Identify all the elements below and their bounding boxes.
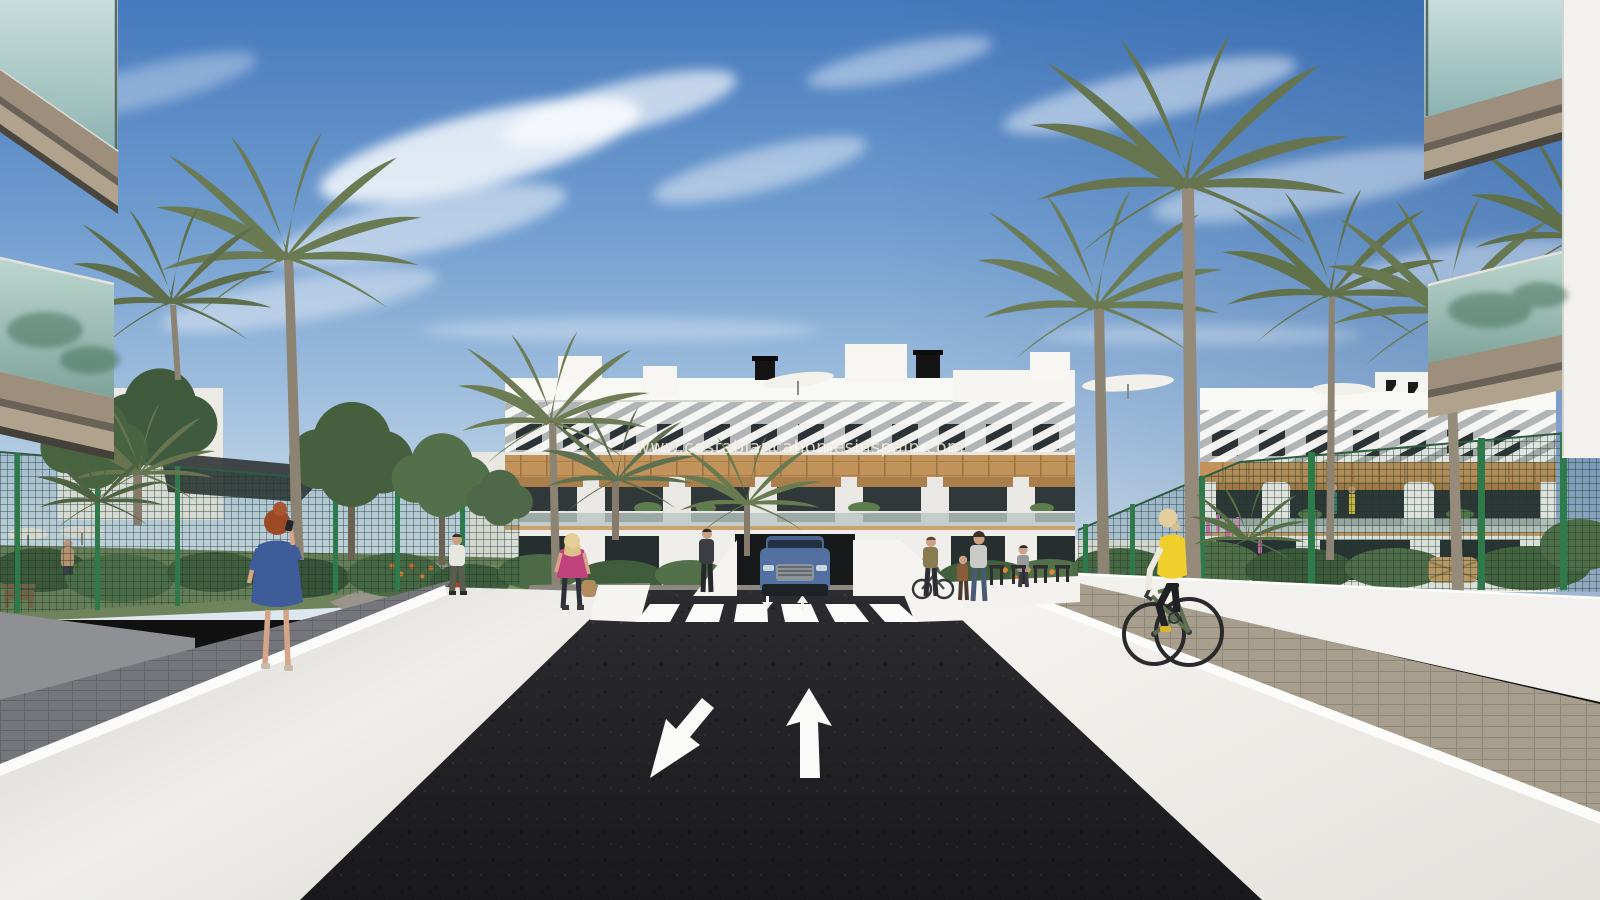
top-floor-pergola	[505, 402, 1075, 455]
chimney	[916, 352, 940, 378]
blue-suv	[760, 536, 830, 596]
render-image: www.costablancahomesinspain.com	[0, 0, 1600, 900]
roof-parasol	[1312, 383, 1372, 395]
chimney	[755, 358, 775, 380]
glass-railing	[505, 512, 1075, 528]
handbag	[582, 580, 596, 597]
yellow-vest	[1157, 534, 1187, 579]
